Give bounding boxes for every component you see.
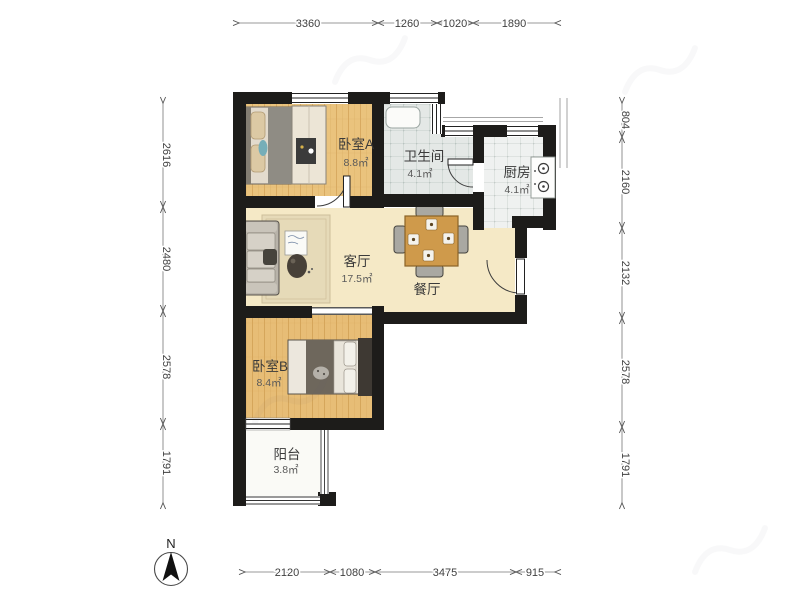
room-bedroom-b-label: 卧室B [252,358,288,374]
dim-label-left-1: 2480 [160,247,172,271]
dim-label-top-2: 1020 [443,18,467,30]
room-bedroom-b-area: 8.4㎡ [256,377,282,389]
compass: N [155,536,188,586]
room-balcony-area: 3.8㎡ [273,464,299,476]
dining-table [394,205,468,277]
room-bathroom-label: 卫生间 [404,149,445,164]
room-bedroom-a-label: 卧室A [338,136,374,152]
room-living-label: 客厅 [344,253,371,269]
dim-label-right-2: 2132 [619,261,631,285]
room-kitchen-area: 4.1㎡ [504,184,530,196]
room-bathroom-area: 4.1㎡ [407,168,433,180]
north-needle-icon [163,552,180,581]
dining-chair [416,265,443,277]
kitchen-stove [531,157,555,198]
room-living-area: 17.5㎡ [342,273,373,285]
bed-b [288,338,372,396]
window-bathroom-step [431,104,442,134]
exterior-ledge-lines [443,118,543,122]
dim-label-bottom-3: 915 [526,567,544,579]
dim-label-left-2: 2578 [160,355,172,379]
floor-plan-svg: 卧室A 8.8㎡ 卫生间 4.1㎡ 厨房 4.1㎡ 客厅 17.5㎡ 餐厅 卧室… [0,0,800,600]
north-label: N [166,536,175,551]
dim-label-left-0: 2616 [160,143,172,167]
dim-label-bottom-1: 1080 [340,567,364,579]
dim-label-right-4: 1791 [619,453,631,477]
window-kitchen-left [445,125,473,137]
window-bedroom-a [292,92,348,104]
dim-label-bottom-0: 2120 [275,567,299,579]
room-kitchen-label: 厨房 [504,165,531,180]
dim-label-top-3: 1890 [502,18,526,30]
dining-chair [394,226,406,253]
room-bedroom-a-area: 8.8㎡ [343,157,369,169]
dim-label-right-3: 2578 [619,360,631,384]
bathroom-sink [386,107,420,128]
dim-label-left-3: 1791 [160,451,172,475]
floor-plan-page: 卧室A 8.8㎡ 卫生间 4.1㎡ 厨房 4.1㎡ 客厅 17.5㎡ 餐厅 卧室… [0,0,800,600]
dim-label-right-0: 804 [619,111,631,129]
dim-label-top-1: 1260 [395,18,419,30]
balcony-railing-bottom [246,496,320,505]
balcony-railing-right [320,430,329,494]
window-bathroom-top [390,92,438,104]
room-balcony-floor [246,430,321,496]
wardrobe-a [292,106,326,184]
dim-label-bottom-2: 3475 [433,567,457,579]
opening-living-bedroom-b [312,307,372,315]
window-bedroom-b-balcony [246,418,290,430]
room-dining-label: 餐厅 [414,282,441,297]
exterior-side-lines [560,98,567,168]
dim-label-right-1: 2160 [619,170,631,194]
window-kitchen-right [507,125,538,137]
room-balcony-label: 阳台 [274,447,301,462]
dim-label-top-0: 3360 [296,18,320,30]
bed-a [246,107,292,184]
sofa [243,221,279,295]
